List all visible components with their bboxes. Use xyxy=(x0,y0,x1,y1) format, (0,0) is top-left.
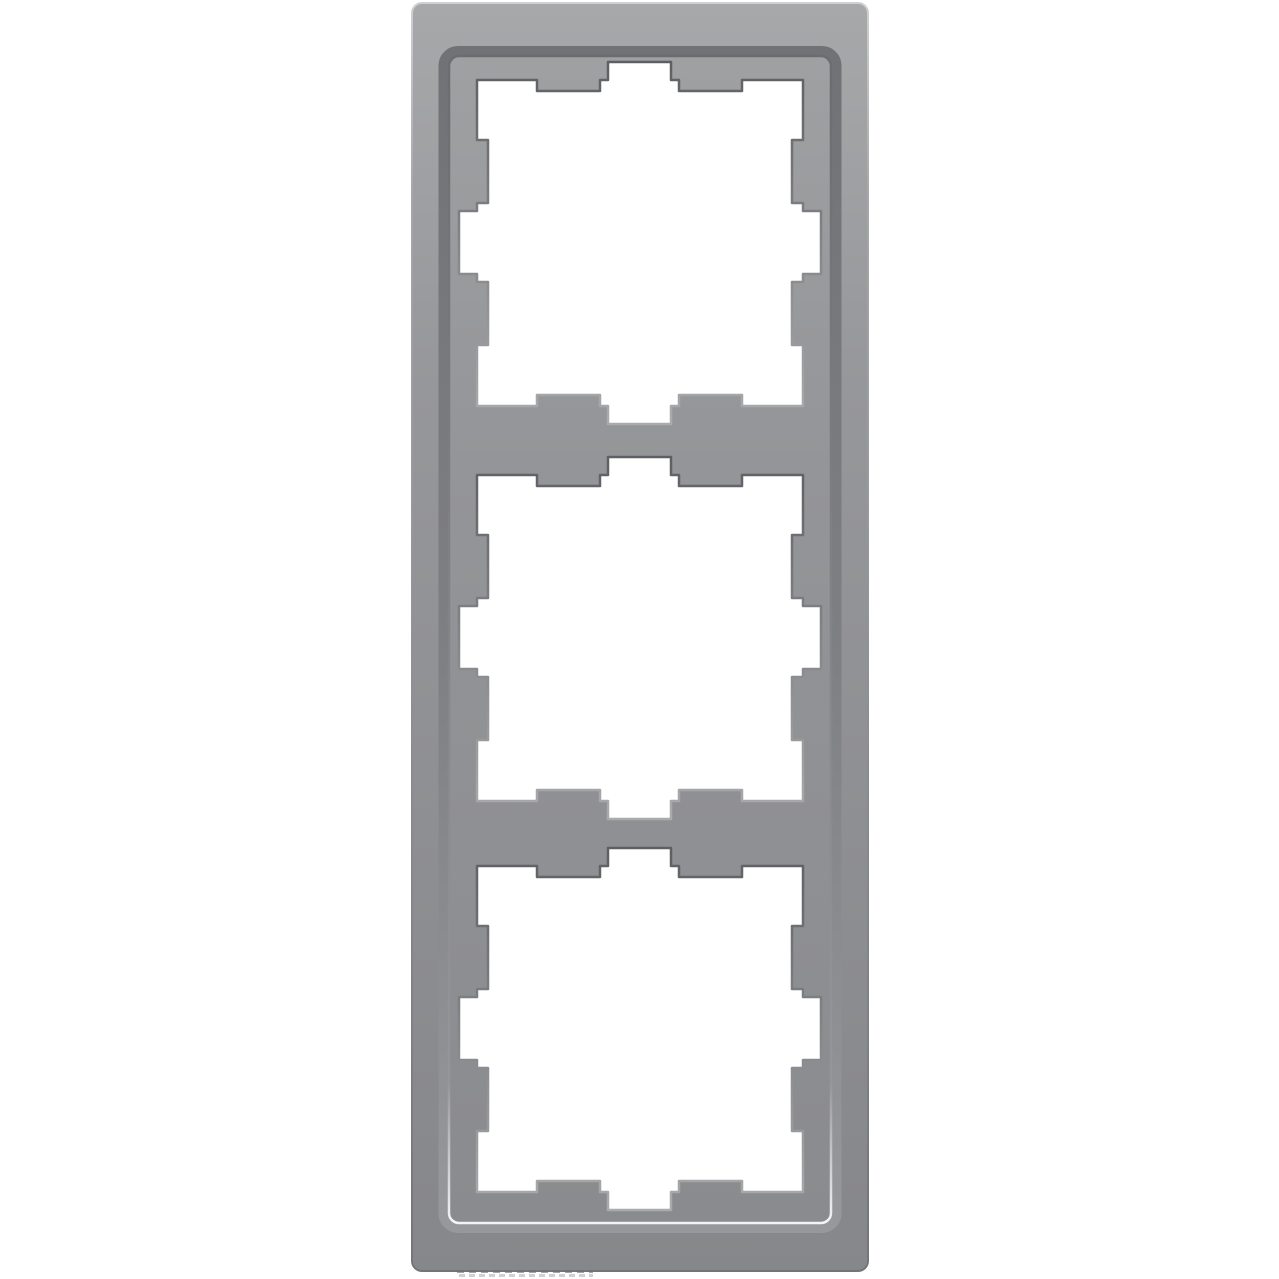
aperture-cutout-2 xyxy=(459,457,821,819)
embossed-marking xyxy=(457,1272,593,1276)
aperture-cutout-3 xyxy=(459,848,821,1210)
product-image xyxy=(0,0,1279,1279)
aperture-cutout-1 xyxy=(459,62,821,424)
product-photo-canvas xyxy=(0,0,1279,1279)
